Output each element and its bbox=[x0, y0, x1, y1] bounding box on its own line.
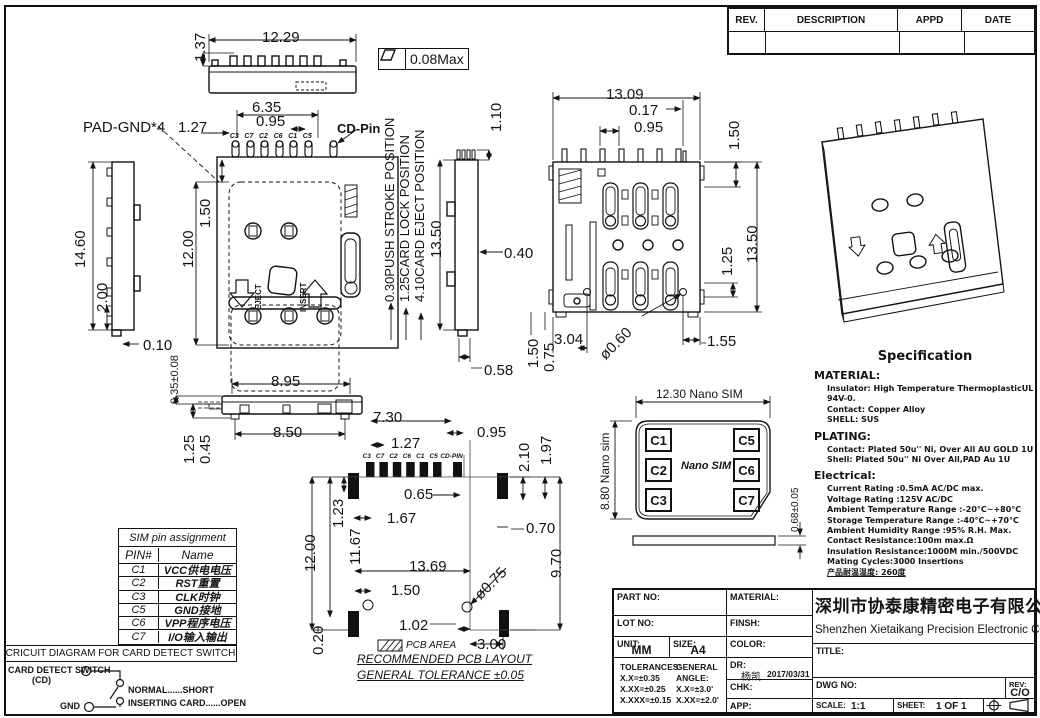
spec-line: Ambient Humidity Range :95% R.H. Max. bbox=[827, 526, 1038, 536]
general-tolerance-label: GENERAL TOLERANCE ±0.05 bbox=[357, 669, 524, 681]
sim-table-title: SIM pin assignment bbox=[119, 532, 236, 544]
dim-1-50: 1.50 bbox=[198, 199, 213, 228]
spec-line: Current Rating :0.5mA AC/DC max. bbox=[827, 484, 1038, 494]
specification-section: Specification MATERIAL: Insulator: High … bbox=[812, 349, 1038, 578]
dim-8-95: 8.95 bbox=[271, 374, 300, 389]
unit-cell: UNIT:MM bbox=[614, 637, 670, 658]
spec-line: Insulator: High Temperature Thermoplasti… bbox=[827, 384, 1038, 405]
pin-label: C2 bbox=[387, 453, 400, 460]
isometric-view-drawing bbox=[822, 112, 1004, 322]
tol-line: X.XX=±0.25 bbox=[620, 684, 681, 695]
dim-12-00: 12.00 bbox=[181, 230, 196, 268]
pin-label: C3 bbox=[227, 133, 242, 140]
eject-label: EJECT bbox=[255, 284, 263, 310]
dim-0-95-bv: 0.95 bbox=[634, 120, 663, 135]
flatness-symbol-icon bbox=[379, 49, 406, 69]
pin-cell: C7 bbox=[119, 631, 159, 643]
dim-0-20: 0.20 bbox=[311, 626, 326, 655]
color-cell: COLOR: bbox=[727, 637, 813, 658]
dim-1-37: 1.37 bbox=[193, 33, 208, 62]
rev-col-header: REV. bbox=[729, 9, 765, 31]
spec-line: Contact: Plated 50u'' Ni, Over All AU GO… bbox=[827, 445, 1038, 455]
dim-13-50-bv: 13.50 bbox=[745, 225, 760, 263]
pin-col-header: PIN# bbox=[119, 548, 159, 562]
dim-3-00: 3.00 bbox=[477, 637, 506, 652]
nano-pad-c1: C1 bbox=[645, 428, 672, 452]
dim-8-50: 8.50 bbox=[273, 425, 302, 440]
spec-line: SHELL: SUS bbox=[827, 415, 1038, 425]
flatness-value: 0.08Max bbox=[406, 49, 468, 69]
dim-7-30: 7.30 bbox=[373, 410, 402, 425]
nano-pad-c6: C6 bbox=[733, 458, 760, 482]
dim-3-04: 3.04 bbox=[554, 332, 583, 347]
plating-heading: PLATING: bbox=[814, 430, 1038, 443]
dim-13-09: 13.09 bbox=[606, 87, 644, 102]
insert-label: INSERT bbox=[300, 283, 308, 312]
right-side-view-drawing bbox=[447, 150, 503, 368]
dim-0-17: 0.17 bbox=[629, 103, 658, 118]
pin-cell: C5 bbox=[119, 604, 159, 616]
dim-13-50-side: 13.50 bbox=[429, 220, 444, 258]
spec-line: Voltage Rating :125V AC/DC bbox=[827, 495, 1038, 505]
pin-label: C1 bbox=[414, 453, 427, 460]
dim-1-27: 1.27 bbox=[178, 120, 207, 135]
dr-cell: DR: 杨凯 2017/03/31 bbox=[727, 658, 813, 680]
title-cell: TITLE: bbox=[813, 644, 1034, 678]
nano-pad-c7: C7 bbox=[733, 488, 760, 512]
push-stroke-position-label: 0.30PUSH STROKE POSITION bbox=[383, 118, 396, 302]
dim-0-65: 0.65 bbox=[404, 487, 433, 502]
dim-1-10: 1.10 bbox=[489, 103, 504, 132]
cd-pin-label: CD-Pin bbox=[337, 122, 380, 135]
gnd-label: GND bbox=[60, 702, 80, 711]
chk-cell: CHK: bbox=[727, 680, 813, 699]
pin-label: C2 bbox=[256, 133, 271, 140]
sheet-cell: SHEET:1 OF 1 bbox=[894, 699, 984, 712]
spec-line: Mating Cycles:3000 Insertions bbox=[827, 557, 1038, 567]
pin-label: C7 bbox=[242, 133, 257, 140]
dim-0-75: 0.75 bbox=[542, 343, 557, 372]
sheet-value: 1 OF 1 bbox=[936, 701, 967, 712]
dim-1-55: 1.55 bbox=[707, 334, 736, 349]
finish-cell: FINSH: bbox=[727, 616, 813, 637]
revision-table: REV. DESCRIPTION APPD DATE bbox=[727, 7, 1036, 55]
dim-0-95: 0.95 bbox=[256, 114, 285, 129]
pcb-area-hatch-icon bbox=[378, 640, 402, 651]
dim-1-25-bv: 1.25 bbox=[720, 247, 735, 276]
nano-pad-c5: C5 bbox=[733, 428, 760, 452]
cd-label: (CD) bbox=[32, 676, 51, 685]
pin-label: C7 bbox=[373, 453, 386, 460]
pin-label: CD-PIN bbox=[440, 453, 462, 460]
pin-cell: C6 bbox=[119, 617, 159, 629]
pin-cell: C1 bbox=[119, 564, 159, 576]
nano-pad-c3: C3 bbox=[645, 488, 672, 512]
left-side-view-drawing bbox=[88, 162, 140, 344]
size-cell: SIZE:A4 bbox=[670, 637, 727, 658]
dim-0-45: 0.45 bbox=[198, 435, 213, 464]
spec-line: Ambient Temperature Range :-20°C~+80°C bbox=[827, 505, 1038, 515]
material-cell: MATERIAL: bbox=[727, 590, 813, 616]
spec-title: Specification bbox=[812, 349, 1038, 364]
card-lock-position-label: 1.25CARD LOCK POSITION bbox=[398, 135, 411, 302]
dim-1-97: 1.97 bbox=[539, 436, 554, 465]
table-row: C7I/O输入输出 bbox=[119, 630, 236, 643]
pin-label: C6 bbox=[400, 453, 413, 460]
dim-1-50-pcb: 1.50 bbox=[391, 583, 420, 598]
projection-symbol-cell bbox=[984, 699, 1034, 712]
scale-cell: SCALE:1:1 bbox=[813, 699, 894, 712]
dim-12-29: 12.29 bbox=[262, 30, 300, 45]
dim-1-02: 1.02 bbox=[399, 618, 428, 633]
dim-11-67: 11.67 bbox=[348, 529, 363, 565]
card-detect-switch-label: CARD DETECT SWITCH bbox=[8, 666, 111, 675]
revision-empty-row bbox=[729, 32, 1034, 54]
dim-9-70: 9.70 bbox=[549, 549, 564, 578]
dim-12-00-pcb: 12.00 bbox=[303, 534, 318, 572]
pin-label: C6 bbox=[271, 133, 286, 140]
pin-label: C1 bbox=[285, 133, 300, 140]
dim-0-10: 0.10 bbox=[143, 338, 172, 353]
dim-2-10: 2.10 bbox=[517, 443, 532, 472]
nano-pad-c2: C2 bbox=[645, 458, 672, 482]
angle-line: X.XX=±2.0' bbox=[676, 695, 724, 706]
rev-cell: REV:C/O bbox=[1006, 678, 1034, 699]
tol-line: X.XXX=±0.15 bbox=[620, 695, 681, 706]
nano-sim-label: Nano SIM bbox=[681, 461, 731, 472]
pcb-area-label: PCB AREA bbox=[406, 641, 456, 651]
spec-line-temp: 产品耐温温度: 260度 bbox=[827, 568, 1038, 578]
description-col-header: DESCRIPTION bbox=[765, 9, 898, 31]
bottom-horizontal-view-drawing bbox=[176, 378, 362, 440]
spec-line: Storage Temperature Range :-40°C~+70°C bbox=[827, 516, 1038, 526]
dim-13-69: 13.69 bbox=[409, 559, 447, 574]
app-cell: APP: bbox=[727, 699, 813, 712]
dim-1-25-bh: 1.25 bbox=[182, 435, 197, 464]
dim-0-35-tol: 0.35±0.08 bbox=[170, 355, 181, 404]
dim-1-67: 1.67 bbox=[387, 511, 416, 526]
dim-0-95-pcb: 0.95 bbox=[477, 425, 506, 440]
company-cell: 深圳市协泰康精密电子有限公司 Shenzhen Xietaikang Preci… bbox=[813, 590, 1034, 644]
pcb-pin-labels: C3C7C2C6C1C5CD-PIN bbox=[360, 453, 463, 460]
spec-line: Insulation Resistance:1000M min./500VDC bbox=[827, 547, 1038, 557]
title-block: PART NO: LOT NO: UNIT:MM SIZE:A4 TOLERAN… bbox=[612, 588, 1036, 714]
normal-short-label: NORMAL......SHORT bbox=[128, 686, 214, 695]
dim-0-68-nano: 0.68±0.05 bbox=[791, 488, 801, 532]
pin-cell: C3 bbox=[119, 591, 159, 603]
dim-14-60: 14.60 bbox=[73, 230, 88, 268]
dim-0-58: 0.58 bbox=[484, 363, 513, 378]
dim-1-50-bv: 1.50 bbox=[727, 121, 742, 150]
dim-1-23: 1.23 bbox=[331, 499, 346, 528]
third-angle-projection-icon bbox=[984, 699, 1034, 712]
pin-label: C5 bbox=[427, 453, 440, 460]
dim-8-80-nano: 8.80 Nano sim bbox=[599, 433, 611, 510]
spec-line: Contact Resistance:100m max.Ω bbox=[827, 536, 1038, 546]
sim-pin-table: SIM pin assignment PIN# Name C1VCC供电电压 C… bbox=[118, 528, 237, 645]
dim-1-50-bl: 1.50 bbox=[526, 339, 541, 368]
dim-0-70: 0.70 bbox=[526, 521, 555, 536]
flatness-callout: 0.08Max bbox=[378, 48, 469, 70]
pad-gnd-label: PAD-GND*4 bbox=[83, 120, 165, 135]
drawing-sheet: 1.37 12.29 0.08Max PAD-GND*4 1.27 6.35 0… bbox=[0, 0, 1040, 718]
card-eject-position-label: 4.10CARD EJECT POSITION bbox=[413, 130, 426, 302]
company-name-en: Shenzhen Xietaikang Precision Electronic… bbox=[815, 624, 1033, 636]
tol-line: X.X=±0.35 bbox=[620, 673, 681, 684]
electrical-heading: Electrical: bbox=[814, 469, 1038, 482]
pin-cell: C2 bbox=[119, 577, 159, 589]
circuit-diagram-banner: CRICUIT DIAGRAM FOR CARD DETECT SWITCH bbox=[5, 645, 237, 662]
scale-value: 1:1 bbox=[851, 701, 865, 712]
company-name-cn: 深圳市协泰康精密电子有限公司 bbox=[815, 592, 1033, 617]
angle-heading: GENERAL ANGLE: bbox=[676, 662, 724, 684]
dim-2-00: 2.00 bbox=[95, 283, 110, 312]
angle-line: X.X=±3.0' bbox=[676, 684, 724, 695]
dim-1-27-pcb: 1.27 bbox=[391, 436, 420, 451]
dim-12-30-nano: 12.30 Nano SIM bbox=[656, 388, 743, 400]
dwg-no-cell: DWG NO: bbox=[813, 678, 1006, 699]
part-no-cell: PART NO: bbox=[614, 590, 727, 616]
eject-arrow-icon bbox=[230, 280, 254, 307]
lot-no-cell: LOT NO: bbox=[614, 616, 727, 637]
nano-sim-card-drawing bbox=[610, 396, 806, 559]
recommended-pcb-layout-label: RECOMMENDED PCB LAYOUT bbox=[357, 653, 532, 665]
name-cell: I/O输入输出 bbox=[159, 629, 236, 645]
spec-line: Shell: Plated 50u'' Ni Over All,PAD Au 1… bbox=[827, 455, 1038, 465]
date-col-header: DATE bbox=[962, 9, 1034, 31]
name-col-header: Name bbox=[159, 548, 236, 562]
tolerances-cell: TOLERANCES: X.X=±0.35 X.XX=±0.25 X.XXX=±… bbox=[614, 658, 727, 712]
spec-line: Contact: Copper Alloy bbox=[827, 405, 1038, 415]
material-heading: MATERIAL: bbox=[814, 369, 1038, 382]
tolerances-heading: TOLERANCES: bbox=[620, 662, 681, 673]
front-pin-labels: C3C7C2C6C1C5 bbox=[227, 133, 315, 140]
appd-col-header: APPD bbox=[898, 9, 962, 31]
pin-label: C3 bbox=[360, 453, 373, 460]
dr-date: 2017/03/31 bbox=[767, 669, 810, 679]
inserting-open-label: INSERTING CARD......OPEN bbox=[128, 699, 246, 708]
pin-label: C5 bbox=[300, 133, 315, 140]
dim-0-40: 0.40 bbox=[504, 246, 533, 261]
